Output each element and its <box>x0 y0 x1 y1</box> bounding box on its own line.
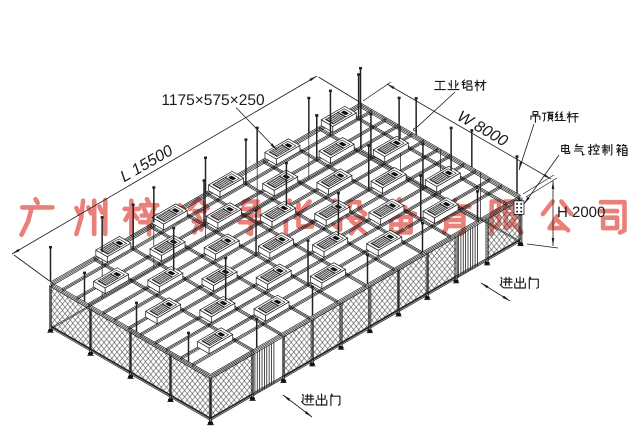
svg-text:H 2000: H 2000 <box>557 204 605 221</box>
svg-text:1175×575×250: 1175×575×250 <box>161 92 265 109</box>
